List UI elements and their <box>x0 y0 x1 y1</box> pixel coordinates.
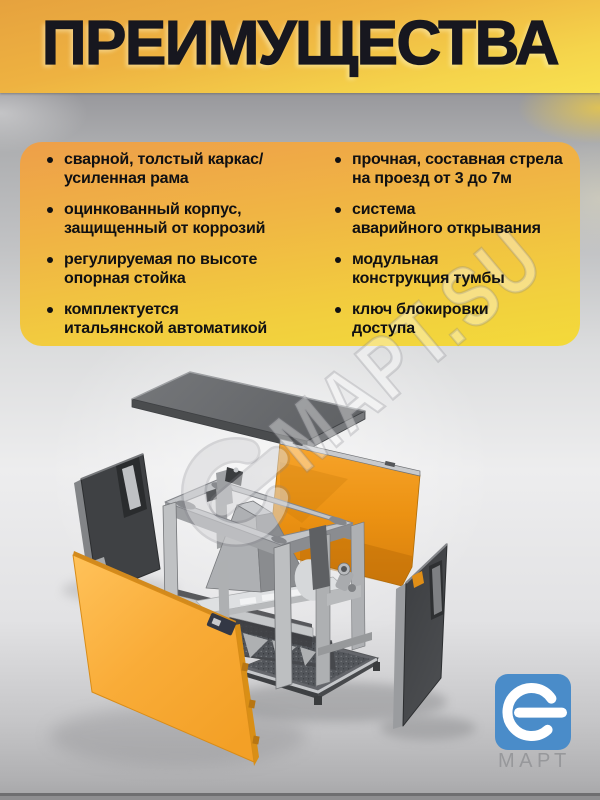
svg-text:МАРТ: МАРТ <box>498 750 571 772</box>
